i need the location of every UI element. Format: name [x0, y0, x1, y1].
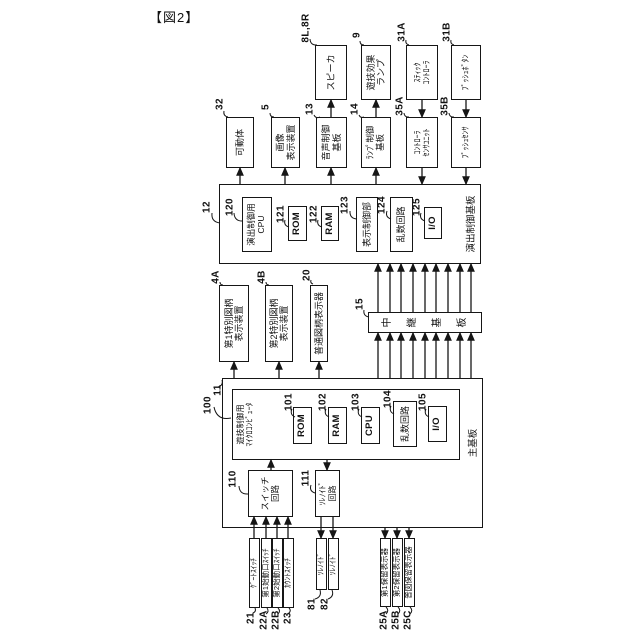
ref-leader-line — [360, 41, 364, 45]
ref-leader-line — [406, 40, 409, 45]
ref-leader-line — [234, 213, 243, 221]
ref-leader-line — [315, 590, 320, 599]
ref-leader-line — [266, 282, 269, 285]
ref-leader-line — [220, 282, 223, 285]
ref-leader-line — [311, 280, 313, 284]
ref-leader-line — [212, 213, 220, 223]
ref-leader-line — [451, 40, 454, 45]
ref-leader-line — [218, 380, 222, 387]
ref-leader-line — [425, 409, 429, 417]
block-diagram: スピーカ遊技効果ランプｽﾃｨｯｸｺﾝﾄﾛｰﾗﾌﾟｯｼｭﾎﾞﾀﾝ可動体画像表示装置… — [0, 0, 640, 640]
ref-leader-line — [421, 213, 426, 221]
ref-leader-line — [359, 115, 364, 117]
ref-leader-line — [410, 607, 412, 614]
ref-leader-line — [239, 486, 248, 494]
ref-leader-line — [386, 607, 388, 614]
ref-leader-line — [325, 409, 329, 417]
ref-leader-line — [253, 608, 255, 613]
ref-leader-line — [291, 409, 295, 417]
ref-leader-line — [214, 407, 231, 419]
ref-leader-line — [314, 115, 320, 118]
diagram-connectors — [0, 0, 640, 640]
ref-leader-line — [398, 607, 400, 614]
ref-leader-line — [266, 608, 268, 614]
ref-leader-line — [270, 113, 274, 117]
ref-leader-line — [311, 485, 316, 493]
ref-leader-line — [278, 608, 280, 614]
ref-leader-line — [404, 113, 409, 117]
ref-leader-line — [224, 111, 228, 117]
ref-leader-line — [328, 590, 333, 599]
ref-leader-line — [449, 113, 454, 117]
ref-leader-line — [350, 211, 357, 219]
ref-leader-line — [289, 608, 290, 613]
ref-leader-line — [390, 406, 394, 414]
patent-figure-page: 【図2】 スピーカ遊技効果ランプｽﾃｨｯｸｺﾝﾄﾛｰﾗﾌﾟｯｼｭﾎﾞﾀﾝ可動体画… — [0, 0, 640, 640]
ref-leader-line — [285, 220, 289, 227]
ref-leader-line — [358, 409, 362, 417]
ref-leader-line — [318, 220, 322, 227]
ref-leader-line — [364, 310, 369, 317]
ref-leader-line — [310, 39, 317, 45]
ref-leader-line — [387, 211, 392, 219]
